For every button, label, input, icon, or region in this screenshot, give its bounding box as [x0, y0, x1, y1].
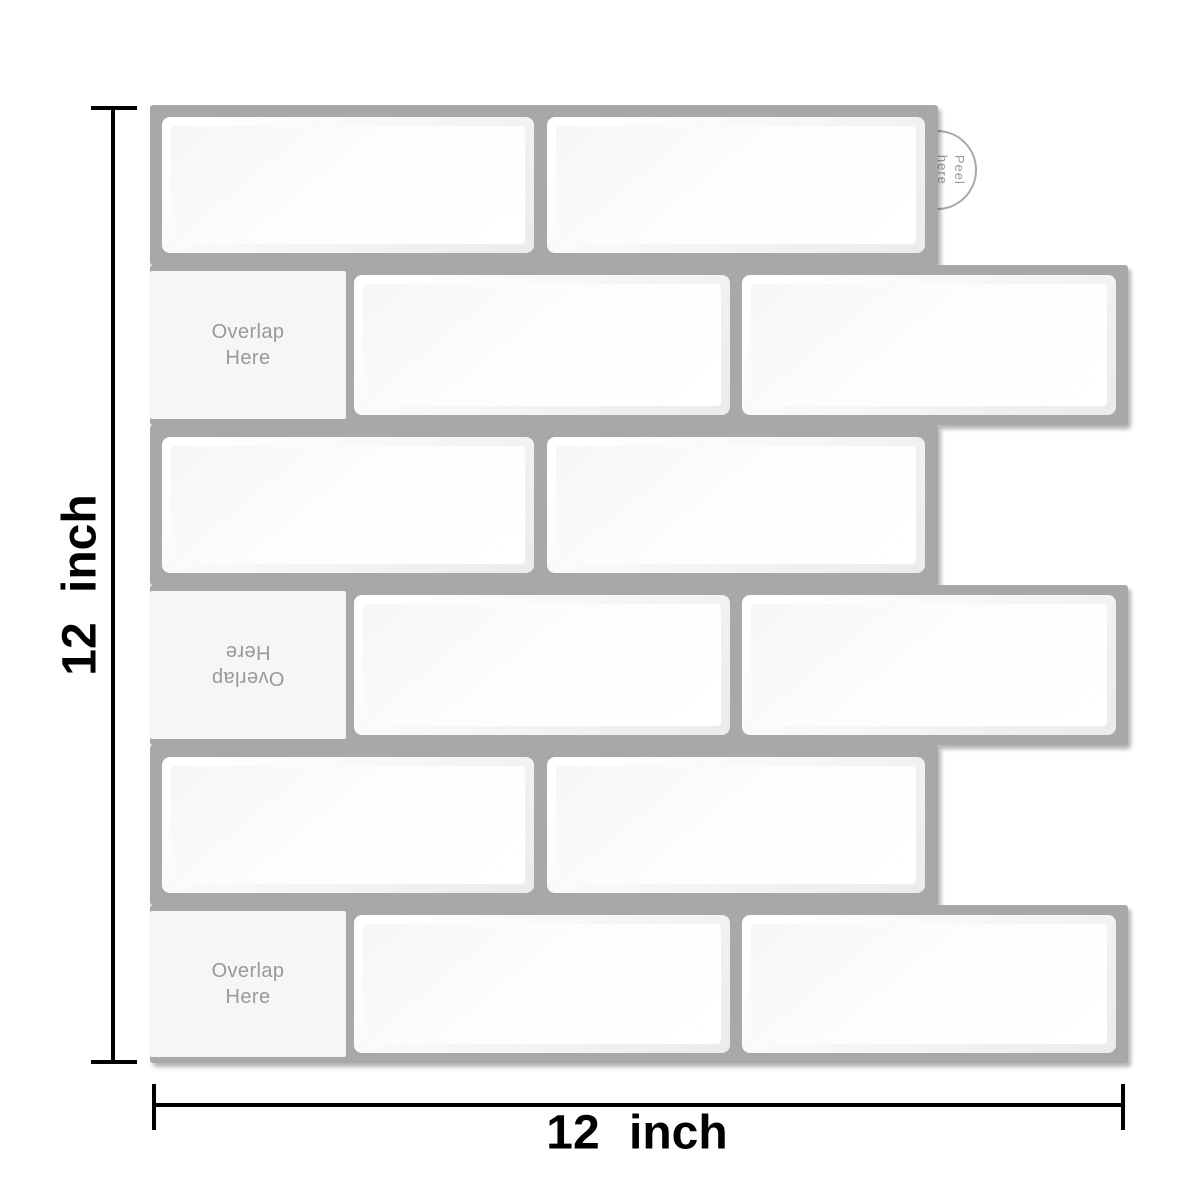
overlap-flap: Overlap Here	[150, 591, 346, 739]
tile	[742, 595, 1116, 735]
product-diagram-canvas: 12 inch Peel here Overlap Here Overlap H…	[0, 0, 1200, 1200]
tile-row-1	[150, 105, 938, 265]
tile	[354, 915, 730, 1053]
overlap-here-label: Overlap Here	[199, 958, 297, 1010]
tile	[547, 117, 925, 253]
tile	[354, 275, 730, 415]
tile-row-4: Overlap Here	[150, 585, 1128, 745]
left-dimension-bottom-tick	[91, 1060, 137, 1064]
peel-here-label: Peel here	[933, 148, 967, 192]
tile	[547, 437, 925, 573]
overlap-flap: Overlap Here	[150, 271, 346, 419]
tile	[354, 595, 730, 735]
left-dimension-line	[111, 106, 115, 1064]
tile	[742, 275, 1116, 415]
tile	[742, 915, 1116, 1053]
tile	[162, 757, 534, 893]
tile-row-5	[150, 745, 938, 905]
overlap-flap: Overlap Here	[150, 911, 346, 1057]
bottom-dimension-label: 12 inch	[546, 1106, 727, 1161]
left-dimension-top-tick	[91, 106, 137, 110]
tile	[162, 117, 534, 253]
bottom-dimension-left-tick	[152, 1084, 156, 1130]
tile	[547, 757, 925, 893]
tile-row-3	[150, 425, 938, 585]
tile-row-6: Overlap Here	[150, 905, 1128, 1063]
overlap-here-label: Overlap Here	[199, 319, 297, 371]
overlap-here-label-flipped: Overlap Here	[199, 639, 297, 691]
bottom-dimension-right-tick	[1121, 1084, 1125, 1130]
tile-row-2: Overlap Here	[150, 265, 1128, 425]
tile	[162, 437, 534, 573]
left-dimension-label: 12 inch	[53, 494, 108, 675]
